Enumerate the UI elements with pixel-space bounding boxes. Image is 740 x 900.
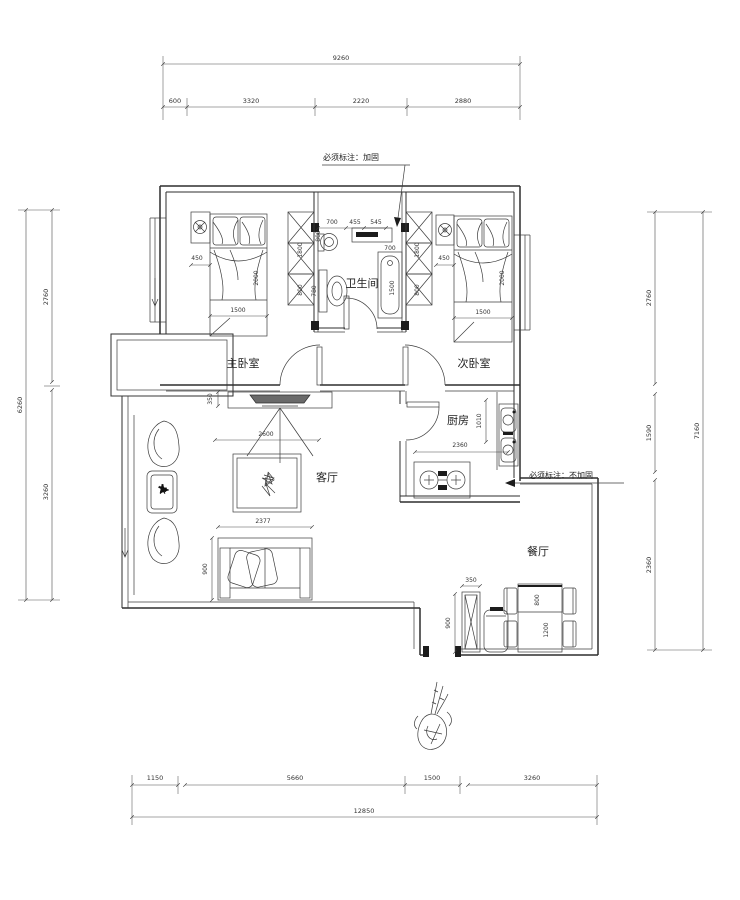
label-dining-room: 餐厅 <box>527 544 549 558</box>
dim-second-nightstand: 450 <box>438 255 450 262</box>
room-bathroom: 700 455 545 800 780 700 1500 卫 <box>311 219 402 329</box>
room-kitchen: 厨房 1010 2360 <box>406 392 518 498</box>
dim-right-total: 7160 <box>693 423 701 440</box>
dim-second-bed-len: 2000 <box>499 270 506 285</box>
label-living-room: 客厅 <box>316 470 338 484</box>
bathroom-door <box>344 296 377 329</box>
dim-bath-b: 455 <box>349 219 361 226</box>
dim-master-bed-w: 1500 <box>230 307 245 314</box>
dim-second-ward-a: 1800 <box>414 242 421 257</box>
floor-plan-canvas: 9260 600 3320 2220 2880 1150 5660 1500 3… <box>0 0 740 900</box>
dim-bottom-1: 1150 <box>147 774 164 782</box>
dim-bottom-3: 1500 <box>424 774 441 782</box>
window-right <box>514 235 530 330</box>
label-bathroom: 卫生间 <box>346 276 379 290</box>
annotation-top-note: 必须标注：加固 <box>323 152 379 162</box>
dim-top-4: 2880 <box>455 97 472 105</box>
dim-bath-tub-w: 700 <box>384 245 396 252</box>
master-bed-dims: 450 2000 1500 <box>191 255 267 316</box>
kitchen-sink <box>497 392 518 470</box>
dimension-chain-left: 6260 2760 3260 <box>16 210 60 600</box>
sliding-arrow-icon <box>122 528 128 557</box>
sofa <box>218 538 312 600</box>
toilet: 780 <box>311 270 347 312</box>
wash-basin: 800 <box>315 230 338 251</box>
annotation-right-note: 必须标注：不加固 <box>529 470 593 480</box>
second-bed-dims: 450 2000 1500 <box>436 255 512 318</box>
floor-plan: 9260 600 3320 2220 2880 1150 5660 1500 3… <box>0 0 740 900</box>
kitchen-door <box>406 402 439 440</box>
label-master-bedroom: 主卧室 <box>227 356 260 370</box>
dimension-chain-top: 9260 600 3320 2220 2880 <box>163 54 520 120</box>
dim-kitchen-h: 1010 <box>476 413 483 428</box>
window-left <box>150 218 166 322</box>
plant-icon <box>158 484 169 494</box>
dim-right-3: 2360 <box>645 557 653 574</box>
second-door <box>403 345 445 385</box>
dimension-chain-bottom: 1150 5660 1500 3260 12850 <box>132 774 597 825</box>
dim-bottom-4: 3260 <box>524 774 541 782</box>
dim-top-2: 3320 <box>243 97 260 105</box>
dim-bath-basin: 800 <box>315 230 322 242</box>
leader-arrow-icon <box>394 217 401 227</box>
nightstand-lamp-2 <box>436 215 454 245</box>
room-second-bedroom: 1800 800 450 2000 1500 次卧室 <box>403 212 512 385</box>
dim-tv-depth: 350 <box>207 393 214 405</box>
dim-top-total: 9260 <box>333 54 350 62</box>
plant-icon <box>262 472 275 496</box>
dim-right-1: 2760 <box>645 290 653 307</box>
leader-arrow-icon <box>505 479 515 487</box>
dim-sofa: 900 <box>202 563 209 575</box>
entry-plant-icon <box>414 682 451 749</box>
dim-master-ward-b: 800 <box>297 284 304 296</box>
label-kitchen: 厨房 <box>447 414 469 427</box>
dim-bath-tub-l: 1500 <box>389 280 396 295</box>
second-wardrobe: 1800 800 <box>406 212 432 305</box>
armchair-1 <box>148 421 179 467</box>
dimension-chain-right: 2760 1590 2360 7160 <box>645 212 712 650</box>
room-master-bedroom: 450 2000 1500 1800 800 主卧室 <box>191 212 322 385</box>
dim-bath-a: 700 <box>326 219 338 226</box>
nightstand-lamp <box>191 212 210 243</box>
dim-top-1: 600 <box>169 97 181 105</box>
bath-shelf <box>352 228 392 242</box>
dim-master-ward-a: 1800 <box>297 242 304 257</box>
stove <box>414 462 470 498</box>
master-door <box>280 345 322 385</box>
dim-bottom-total: 12850 <box>354 807 375 815</box>
dining-cabinet <box>462 592 480 652</box>
dim-left-1: 2760 <box>42 289 50 306</box>
dim-second-bed-w: 1500 <box>475 309 490 316</box>
dim-master-nightstand: 450 <box>191 255 203 262</box>
dim-top-3: 2220 <box>353 97 370 105</box>
dim-dining-cab-w: 350 <box>465 577 477 584</box>
dim-tv-wall: 2600 <box>258 431 273 438</box>
dim-coffee-table: 2377 <box>255 518 270 525</box>
window-arrow-icon <box>152 278 158 306</box>
room-living: 350 2600 客厅 2377 <box>147 392 338 600</box>
dim-bottom-2: 5660 <box>287 774 304 782</box>
label-second-bedroom: 次卧室 <box>458 356 491 370</box>
dim-second-ward-b: 800 <box>414 284 421 296</box>
balcony-sliding-window <box>111 396 160 608</box>
dim-right-2: 1590 <box>645 425 653 442</box>
dim-dining-cab-h: 900 <box>445 617 452 629</box>
armchair-2 <box>148 518 179 564</box>
entry-jamb-left <box>423 646 429 657</box>
coffee-table <box>233 454 301 512</box>
dim-master-bed-len: 2000 <box>253 270 260 285</box>
dim-kitchen-w: 2360 <box>452 442 467 449</box>
side-table <box>147 471 177 513</box>
tv-unit <box>228 392 332 463</box>
dim-left-total: 6260 <box>16 397 24 414</box>
dining-table: 800 1200 <box>518 584 562 652</box>
bathtub: 700 1500 <box>378 245 402 318</box>
room-dining: 餐厅 350 900 800 1200 <box>445 544 576 652</box>
dim-table-l: 1200 <box>543 622 550 637</box>
entry-jamb-right <box>455 646 461 657</box>
dim-bath-toilet: 780 <box>311 285 318 297</box>
dim-bath-c: 545 <box>370 219 382 226</box>
dim-table-w: 800 <box>534 594 541 606</box>
dim-left-2: 3260 <box>42 484 50 501</box>
annotation-reinforce: 必须标注：加固 <box>322 152 410 227</box>
